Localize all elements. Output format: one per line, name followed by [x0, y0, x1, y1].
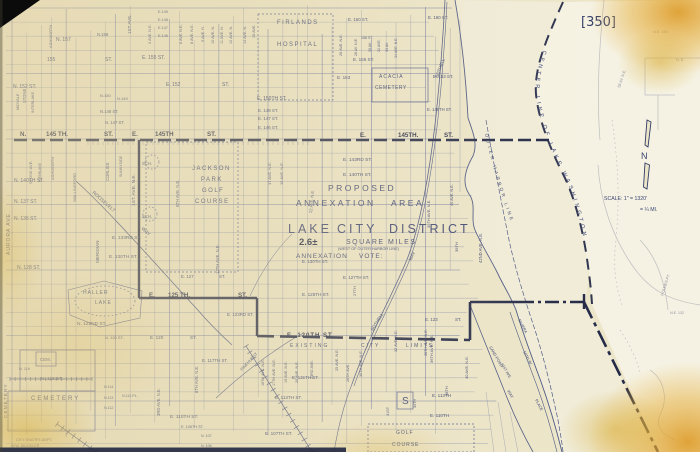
- annexation-map-scan: CENTER LINE OF LAKE WASHINGTON OUTER HAR…: [0, 0, 700, 452]
- bottom-edge-shadow: [0, 448, 346, 452]
- stain-top-right-2: [618, 30, 700, 94]
- left-edge-shadow: [0, 0, 3, 452]
- map-canvas: CENTER LINE OF LAKE WASHINGTON OUTER HAR…: [0, 0, 700, 452]
